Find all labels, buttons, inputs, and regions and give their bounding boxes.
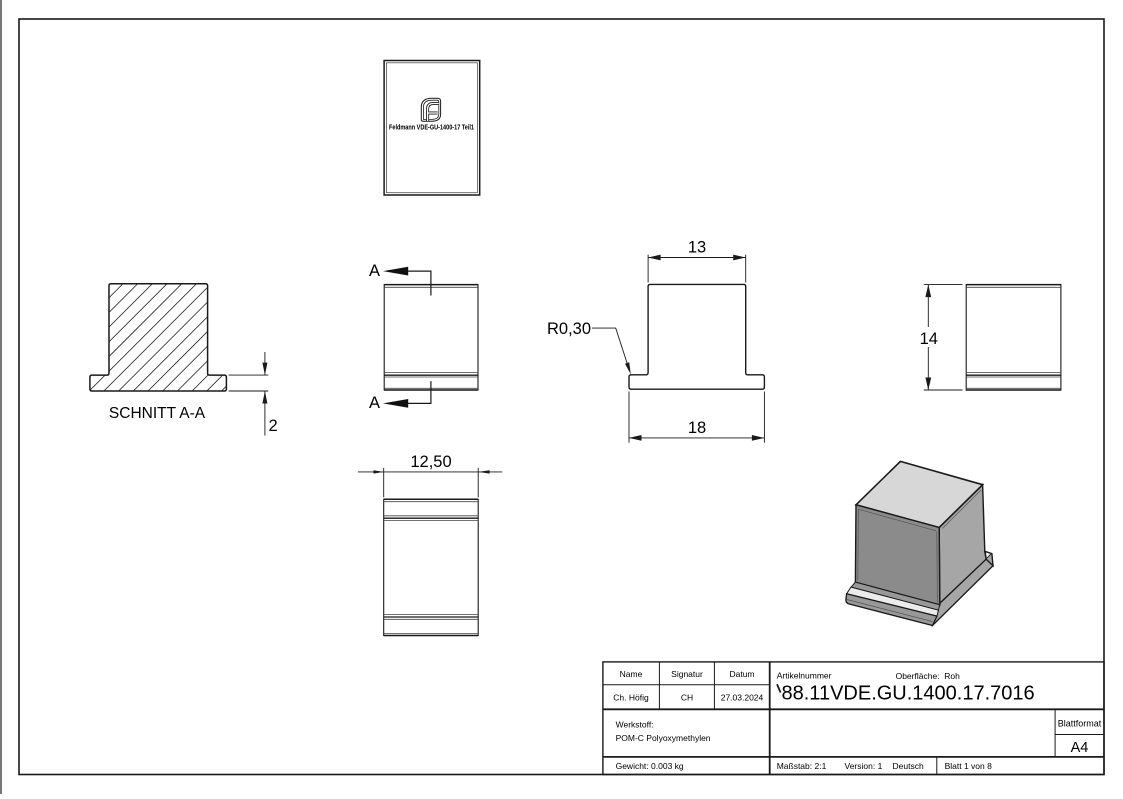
svg-text:Oberfläche: Roh: Oberfläche: Roh bbox=[896, 671, 961, 681]
svg-text:27.03.2024: 27.03.2024 bbox=[721, 692, 764, 702]
svg-text:2: 2 bbox=[269, 417, 278, 435]
svg-text:Artikelnummer: Artikelnummer bbox=[777, 671, 832, 681]
svg-text:Ch. Höfig: Ch. Höfig bbox=[613, 692, 649, 702]
svg-text:Signatur: Signatur bbox=[671, 669, 703, 679]
svg-text:Werkstoff:: Werkstoff: bbox=[616, 720, 654, 730]
svg-text:Version: 1: Version: 1 bbox=[845, 761, 883, 771]
svg-text:Blatt 1 von 8: Blatt 1 von 8 bbox=[945, 761, 993, 771]
svg-text:R0,30: R0,30 bbox=[547, 320, 591, 338]
svg-text:Gewicht: 0.003 kg: Gewicht: 0.003 kg bbox=[616, 761, 684, 771]
svg-text:13: 13 bbox=[688, 239, 706, 257]
svg-text:A: A bbox=[369, 262, 380, 280]
svg-text:CH: CH bbox=[681, 692, 693, 702]
svg-text:88.11VDE.GU.1400.17.7016: 88.11VDE.GU.1400.17.7016 bbox=[782, 683, 1035, 705]
svg-text:A: A bbox=[369, 394, 380, 412]
svg-text:Maßstab: 2:1: Maßstab: 2:1 bbox=[777, 761, 827, 771]
svg-text:Deutsch: Deutsch bbox=[893, 761, 924, 771]
svg-text:Datum: Datum bbox=[729, 669, 754, 679]
svg-text:A4: A4 bbox=[1071, 740, 1089, 756]
svg-text:POM-C Polyoxymethylen: POM-C Polyoxymethylen bbox=[616, 733, 711, 743]
svg-text:Feldmann VDE-GU-1400-17 Teil1: Feldmann VDE-GU-1400-17 Teil1 bbox=[389, 124, 474, 131]
svg-text:SCHNITT A-A: SCHNITT A-A bbox=[109, 405, 206, 422]
svg-text:Name: Name bbox=[620, 669, 643, 679]
svg-text:Blattformat: Blattformat bbox=[1058, 719, 1102, 729]
svg-text:14: 14 bbox=[920, 330, 938, 348]
svg-text:18: 18 bbox=[688, 419, 706, 437]
svg-text:12,50: 12,50 bbox=[410, 453, 451, 471]
